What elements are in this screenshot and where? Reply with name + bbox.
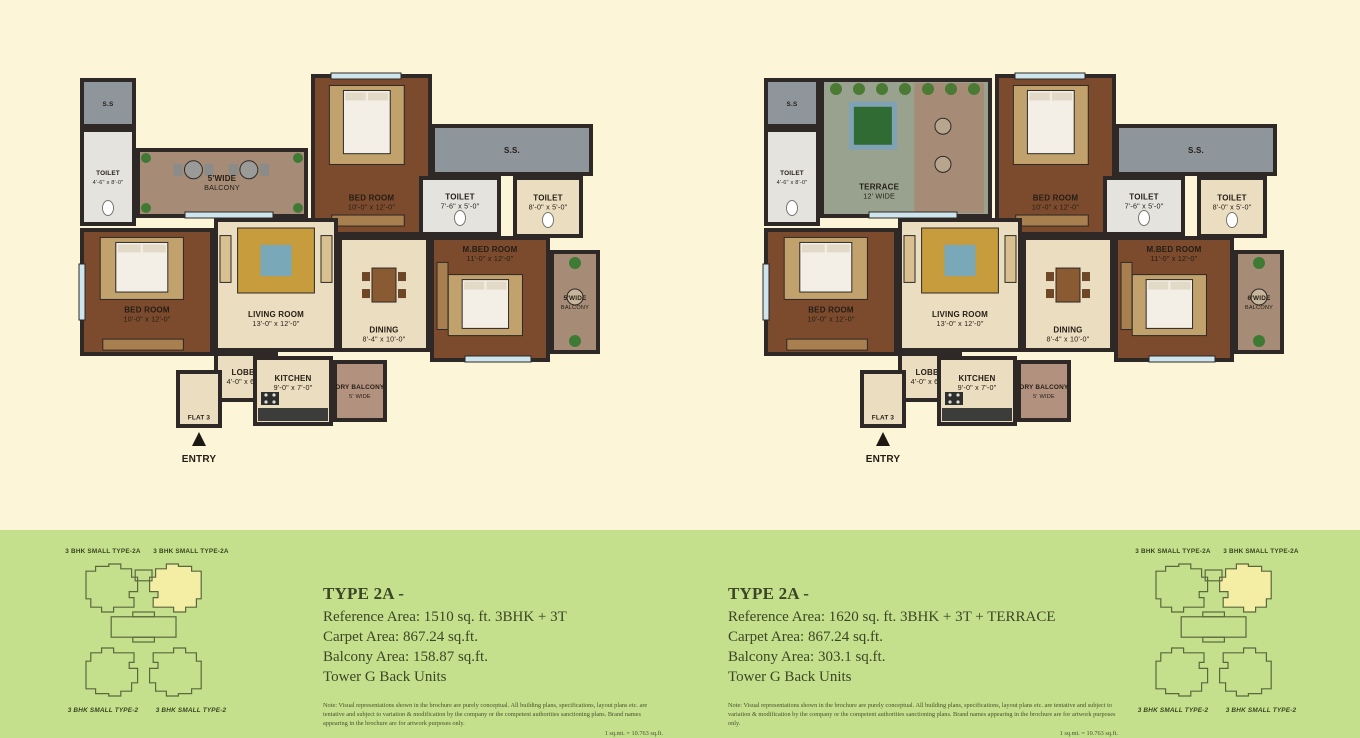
svg-text:10'-0" x 12'-0": 10'-0" x 12'-0"	[123, 314, 170, 323]
key-plan-left: 3 BHK SMALL TYPE-2A3 BHK SMALL TYPE-2A3 …	[28, 540, 260, 718]
tower-footprints	[86, 564, 201, 696]
key-plan-right: 3 BHK SMALL TYPE-2A3 BHK SMALL TYPE-2A3 …	[1098, 540, 1330, 718]
carpet-area: Carpet Area: 867.24 sq.ft.	[323, 627, 663, 647]
toilet-right: TOILET8'-0" x 5'-0"	[1199, 178, 1265, 236]
svg-text:10'-0" x 12'-0": 10'-0" x 12'-0"	[348, 202, 395, 211]
svg-text:3 BHK SMALL TYPE-2: 3 BHK SMALL TYPE-2	[1138, 707, 1209, 714]
conversion-note: 1 sq.mt. = 10.763 sq.ft.	[728, 730, 1118, 737]
living-room: LIVING ROOM13'-0" x 12'-0"	[900, 220, 1020, 350]
svg-text:DRY BALCONY: DRY BALCONY	[336, 384, 385, 391]
toilet-right: TOILET8'-0" x 5'-0"	[515, 178, 581, 236]
svg-text:6'WIDE: 6'WIDE	[1248, 295, 1271, 302]
svg-text:9'-0" x 7'-0": 9'-0" x 7'-0"	[274, 383, 313, 392]
terrace: TERRACE12' WIDE	[822, 80, 990, 216]
tower-label: Tower G Back Units	[728, 667, 1118, 687]
floor-plan-right: S.STOILET4'-6" x 8'-0"TERRACE12' WIDEBED…	[757, 72, 1287, 472]
balcony-area: Balcony Area: 158.87 sq.ft.	[323, 647, 663, 667]
bedroom-left: BED ROOM10'-0" x 12'-0"	[82, 230, 212, 354]
svg-text:8'-0" x 5'-0": 8'-0" x 5'-0"	[1213, 202, 1252, 211]
svg-text:S.S: S.S	[103, 101, 114, 108]
svg-text:9'-0" x 7'-0": 9'-0" x 7'-0"	[958, 383, 997, 392]
disclaimer-note: Note: Visual representations shown in th…	[728, 702, 1118, 728]
svg-text:TOILET: TOILET	[1217, 193, 1247, 202]
svg-text:BED ROOM: BED ROOM	[124, 305, 170, 314]
brochure-page: S.STOILET4'-6" x 8'-0"5'WIDEBALCONYBED R…	[0, 0, 1360, 738]
svg-text:3 BHK SMALL TYPE-2A: 3 BHK SMALL TYPE-2A	[153, 548, 229, 555]
dry-balcony: DRY BALCONY5' WIDE	[335, 362, 385, 420]
svg-text:S.S: S.S	[787, 101, 798, 108]
bedroom-top: BED ROOM10'-0" x 12'-0"	[313, 76, 430, 234]
kitchen: KITCHEN9'-0" x 7'-0"	[939, 358, 1015, 424]
svg-text:3 BHK SMALL TYPE-2A: 3 BHK SMALL TYPE-2A	[1223, 548, 1299, 555]
entry-marker: ENTRY	[866, 432, 901, 465]
svg-text:3 BHK SMALL TYPE-2: 3 BHK SMALL TYPE-2	[156, 707, 227, 714]
svg-text:10'-0" x 12'-0": 10'-0" x 12'-0"	[1032, 202, 1079, 211]
svg-text:TOILET: TOILET	[533, 193, 563, 202]
dining: DINING8'-4" x 10'-0"	[340, 238, 428, 350]
svg-text:13'-0" x 12'-0": 13'-0" x 12'-0"	[936, 319, 983, 328]
svg-text:ENTRY: ENTRY	[182, 454, 217, 465]
tower-label: Tower G Back Units	[323, 667, 663, 687]
kitchen: KITCHEN9'-0" x 7'-0"	[255, 358, 331, 424]
svg-text:KITCHEN: KITCHEN	[959, 374, 996, 383]
svg-text:5' WIDE: 5' WIDE	[349, 394, 371, 400]
svg-text:TOILET: TOILET	[445, 193, 475, 202]
svg-text:4'-6" x 8'-0": 4'-6" x 8'-0"	[777, 180, 808, 186]
toilet-small: TOILET4'-6" x 8'-0"	[82, 130, 134, 224]
key-plan-svg: 3 BHK SMALL TYPE-2A3 BHK SMALL TYPE-2A3 …	[1098, 540, 1330, 718]
svg-text:LIVING ROOM: LIVING ROOM	[248, 310, 304, 319]
svg-text:10'-0" x 12'-0": 10'-0" x 12'-0"	[807, 314, 854, 323]
dining: DINING8'-4" x 10'-0"	[1024, 238, 1112, 350]
svg-text:3 BHK SMALL TYPE-2: 3 BHK SMALL TYPE-2	[68, 707, 139, 714]
svg-text:DRY BALCONY: DRY BALCONY	[1020, 384, 1069, 391]
svg-text:13'-0" x 12'-0": 13'-0" x 12'-0"	[252, 319, 299, 328]
shaft-ss-large: S.S.	[1117, 126, 1275, 174]
svg-text:LIVING ROOM: LIVING ROOM	[932, 310, 988, 319]
svg-text:DINING: DINING	[1053, 325, 1082, 334]
svg-text:BED ROOM: BED ROOM	[349, 193, 395, 202]
shaft-ss-large: S.S.	[433, 126, 591, 174]
svg-text:BALCONY: BALCONY	[561, 305, 589, 311]
shaft-ss-small: S.S	[766, 80, 818, 126]
unit-info-right: TYPE 2A - Reference Area: 1620 sq. ft. 3…	[728, 584, 1118, 737]
toilet-small: TOILET4'-6" x 8'-0"	[766, 130, 818, 224]
entry-hall: FLAT 3	[862, 372, 904, 426]
toilet-mid: TOILET7'-6" x 5'-0"	[1105, 178, 1183, 234]
svg-text:8'-0" x 5'-0": 8'-0" x 5'-0"	[529, 202, 568, 211]
svg-text:ENTRY: ENTRY	[866, 454, 901, 465]
svg-text:3 BHK SMALL TYPE-2A: 3 BHK SMALL TYPE-2A	[1135, 548, 1211, 555]
toilet-mid: TOILET7'-6" x 5'-0"	[421, 178, 499, 234]
floor-plan-left-svg: S.STOILET4'-6" x 8'-0"5'WIDEBALCONYBED R…	[73, 72, 603, 472]
svg-text:BALCONY: BALCONY	[204, 183, 240, 192]
bottom-band: 3 BHK SMALL TYPE-2A3 BHK SMALL TYPE-2A3 …	[0, 530, 1360, 738]
svg-text:5' WIDE: 5' WIDE	[1033, 394, 1055, 400]
svg-text:5'WIDE: 5'WIDE	[208, 174, 237, 183]
svg-text:M.BED ROOM: M.BED ROOM	[1147, 245, 1202, 254]
svg-text:BED ROOM: BED ROOM	[1033, 193, 1079, 202]
svg-text:S.S.: S.S.	[1188, 146, 1204, 155]
type-title: TYPE 2A -	[323, 584, 663, 604]
master-bedroom: M.BED ROOM11'-0" x 12'-0"	[1116, 238, 1232, 360]
floor-plan-left: S.STOILET4'-6" x 8'-0"5'WIDEBALCONYBED R…	[73, 72, 603, 472]
svg-text:5'WIDE: 5'WIDE	[564, 295, 587, 302]
svg-text:TOILET: TOILET	[780, 170, 804, 177]
reference-area: Reference Area: 1620 sq. ft. 3BHK + 3T +…	[728, 607, 1118, 627]
side-balcony: 6'WIDEBALCONY	[1236, 252, 1282, 352]
master-bedroom: M.BED ROOM11'-0" x 12'-0"	[432, 238, 548, 360]
key-plan-svg: 3 BHK SMALL TYPE-2A3 BHK SMALL TYPE-2A3 …	[28, 540, 260, 718]
svg-text:3 BHK SMALL TYPE-2: 3 BHK SMALL TYPE-2	[1226, 707, 1297, 714]
balcony-area: Balcony Area: 303.1 sq.ft.	[728, 647, 1118, 667]
entry-marker: ENTRY	[182, 432, 217, 465]
disclaimer-note: Note: Visual representations shown in th…	[323, 702, 663, 728]
dry-balcony: DRY BALCONY5' WIDE	[1019, 362, 1069, 420]
svg-text:8'-4" x 10'-0": 8'-4" x 10'-0"	[1046, 334, 1089, 343]
svg-text:BED ROOM: BED ROOM	[808, 305, 854, 314]
svg-text:FLAT 3: FLAT 3	[188, 414, 211, 421]
bedroom-left: BED ROOM10'-0" x 12'-0"	[766, 230, 896, 354]
svg-text:11'-0" x 12'-0": 11'-0" x 12'-0"	[467, 254, 514, 263]
balcony-top: 5'WIDEBALCONY	[138, 150, 306, 216]
side-balcony: 5'WIDEBALCONY	[552, 252, 598, 352]
unit-info-left: TYPE 2A - Reference Area: 1510 sq. ft. 3…	[323, 584, 663, 737]
svg-text:12' WIDE: 12' WIDE	[863, 192, 895, 201]
tower-footprints	[1156, 564, 1271, 696]
reference-area: Reference Area: 1510 sq. ft. 3BHK + 3T	[323, 607, 663, 627]
svg-text:KITCHEN: KITCHEN	[275, 374, 312, 383]
svg-text:7'-6" x 5'-0": 7'-6" x 5'-0"	[1125, 202, 1164, 211]
floor-plan-right-svg: S.STOILET4'-6" x 8'-0"TERRACE12' WIDEBED…	[757, 72, 1287, 472]
svg-text:8'-4" x 10'-0": 8'-4" x 10'-0"	[362, 334, 405, 343]
svg-text:TOILET: TOILET	[96, 170, 120, 177]
shaft-ss-small: S.S	[82, 80, 134, 126]
entry-hall: FLAT 3	[178, 372, 220, 426]
living-room: LIVING ROOM13'-0" x 12'-0"	[216, 220, 336, 350]
svg-text:11'-0" x 12'-0": 11'-0" x 12'-0"	[1151, 254, 1198, 263]
carpet-area: Carpet Area: 867.24 sq.ft.	[728, 627, 1118, 647]
svg-text:BALCONY: BALCONY	[1245, 305, 1273, 311]
svg-text:4'-6" x 8'-0": 4'-6" x 8'-0"	[93, 180, 124, 186]
bedroom-top: BED ROOM10'-0" x 12'-0"	[997, 76, 1114, 234]
svg-text:7'-6" x 5'-0": 7'-6" x 5'-0"	[441, 202, 480, 211]
svg-text:TOILET: TOILET	[1129, 193, 1159, 202]
svg-text:3 BHK SMALL TYPE-2A: 3 BHK SMALL TYPE-2A	[65, 548, 141, 555]
conversion-note: 1 sq.mt. = 10.763 sq.ft.	[323, 730, 663, 737]
svg-text:FLAT 3: FLAT 3	[872, 414, 895, 421]
svg-text:S.S.: S.S.	[504, 146, 520, 155]
svg-text:TERRACE: TERRACE	[859, 183, 900, 192]
svg-text:M.BED ROOM: M.BED ROOM	[463, 245, 518, 254]
type-title: TYPE 2A -	[728, 584, 1118, 604]
svg-text:DINING: DINING	[369, 325, 398, 334]
